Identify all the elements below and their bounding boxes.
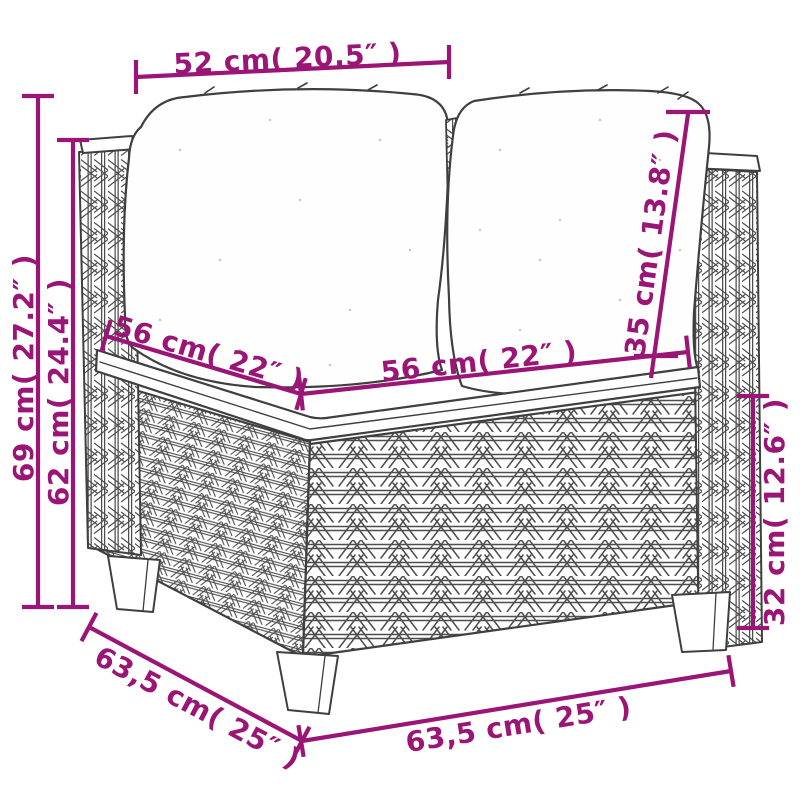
sofa-diagram-svg: 52 cm( 20.5″ ) 69 cm( 27.2″ ) 62 cm( 24.… [0, 0, 800, 800]
dim-top-width-label: 52 cm( 20.5″ ) [173, 36, 403, 80]
dim-top-width: 52 cm( 20.5″ ) [136, 36, 449, 94]
leg-back-left [108, 556, 160, 612]
dim-base-height-label: 32 cm( 12.6″ ) [758, 398, 791, 626]
dim-overall-depth-label: 63,5 cm( 25″ ) [89, 639, 306, 775]
dim-overall-height-label: 69 cm( 27.2″ ) [7, 254, 40, 482]
dim-overall-width-label: 63,5 cm( 25″ ) [403, 690, 634, 759]
leg-front-center [277, 652, 338, 714]
product-dimension-diagram: 52 cm( 20.5″ ) 69 cm( 27.2″ ) 62 cm( 24.… [0, 0, 800, 800]
dim-overall-width: 63,5 cm( 25″ ) [298, 655, 733, 759]
leg-front-right [672, 592, 730, 652]
dim-back-height-label: 62 cm( 24.4″ ) [42, 278, 75, 506]
